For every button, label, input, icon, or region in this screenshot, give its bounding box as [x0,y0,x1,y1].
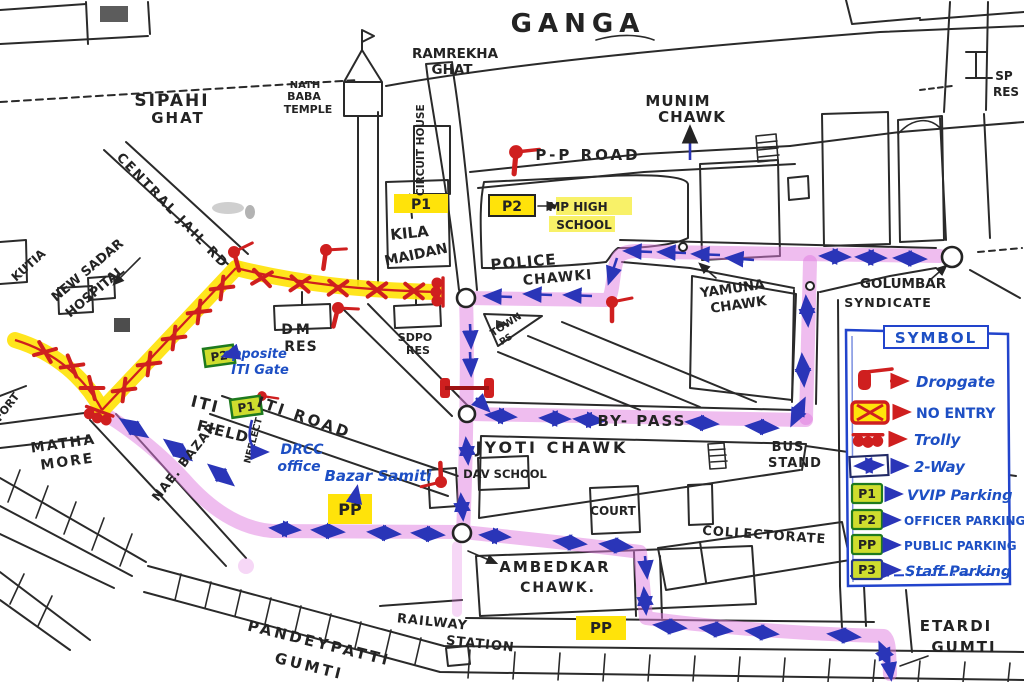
legend-label: NO ENTRY [916,406,996,422]
ambedkar-chawk-block [476,546,756,616]
parking-badge: PP [338,500,362,519]
svg-text:P2: P2 [858,512,876,527]
school-label: DAV SCHOOL [463,467,547,481]
svg-text:CHAWK: CHAWK [658,108,726,126]
svg-text:ITI Gate: ITI Gate [231,363,289,378]
river-label: GANGA [511,9,646,39]
road-label: CENTRAL JAIL RD [113,150,231,271]
kutia-label: KUTIA [9,246,49,284]
residence-label: SDPO [398,331,432,344]
trolly-icon [853,435,883,448]
legend-label: Staff Parking [905,564,1011,580]
svg-text:SCHOOL: SCHOOL [556,218,612,232]
golumbar-label: GOLUMBAR [860,276,947,292]
svg-text:BABA: BABA [287,90,321,103]
svg-text:GHAT: GHAT [432,62,474,78]
court-label: COURT [590,504,636,518]
parking-badge-icon: P1 [852,484,882,503]
school-label: MP HIGH [548,200,607,214]
road-label: BY- PASS [598,412,687,430]
stairs-crossing [708,443,727,469]
parking-badge: PP [590,619,612,637]
svg-text:office: office [277,459,320,475]
legend-label: Dropgate [916,373,995,391]
svg-text:CHAWK.: CHAWK. [520,580,596,596]
town-ps-label: TOWN PS [489,311,531,349]
legend-label: 2-Way [914,458,966,476]
svg-text:RES: RES [284,339,317,355]
map-canvas: P1 P2 P2 P1 PP PP GANGA RAMREKHA GHAT SI… [0,0,1024,682]
bus-stand-label: BUS [772,440,805,455]
chawk-label: AMBEDKAR [499,558,610,576]
chawk-label: JYOTI CHAWK [475,438,629,457]
two-way-icon [850,455,889,477]
svg-text:MAIDAN: MAIDAN [383,241,449,270]
parking-badge: P2 [502,199,522,215]
residence-label: DM [281,322,313,338]
no-entry-icon [852,402,888,423]
svg-text:TEMPLE: TEMPLE [284,103,333,116]
parking-badge-icon: P3 [852,560,882,579]
svg-text:PP: PP [858,537,876,552]
gumti-label: ETARDI [920,617,993,635]
svg-text:RES: RES [406,344,430,357]
svg-text:GHAT: GHAT [151,109,205,127]
svg-text:P3: P3 [858,562,876,577]
baba-temple-building [344,50,382,116]
circuit-house-label: CIRCUIT HOUSE [415,104,427,196]
svg-text:STAND: STAND [768,456,822,471]
legend-label: Trolly [914,431,962,449]
parking-badge: P1 [237,399,256,415]
golumbar-roundabout [942,247,962,267]
legend: SYMBOL Dropgate NO ENTRY Trolly 2-Way P1… [846,326,1024,586]
temple-flag [362,30,374,50]
hand-drawn-route-map: P1 P2 P2 P1 PP PP GANGA RAMREKHA GHAT SI… [0,0,1024,682]
dropgate-icon [317,243,346,271]
svg-text:CHAWKI: CHAWKI [522,267,593,289]
svg-text:P1: P1 [858,486,876,501]
roundabout [453,524,471,542]
svg-text:STATION: STATION [445,633,515,655]
ghat-label: SIPAHI [134,91,209,111]
legend-label: VVIP Parking [907,488,1012,504]
ghat-label: RAMREKHA [412,46,499,62]
iti-field-label: ITI [189,391,222,416]
roundabout [459,406,475,422]
dropgate-icon [606,296,632,321]
note-label: Bazar Samiti [324,467,432,485]
parking-badge-icon: P2 [852,510,882,529]
roundabout [457,289,475,307]
legend-item-no-entry: NO ENTRY [852,402,996,423]
svg-text:RES: RES [993,85,1019,99]
parking-badge-icon: PP [852,535,882,554]
legend-label: PUBLIC PARKING [904,539,1017,553]
dropgate-icon [328,301,359,332]
parking-badge: P1 [411,197,431,213]
legend-label: OFFICER PARKING [904,514,1024,528]
legend-title: SYMBOL [895,329,977,347]
svg-text:SYNDICATE: SYNDICATE [844,295,932,310]
note-label: DRCC [281,442,325,458]
maidan-label: KILA [389,222,429,244]
svg-text:GUMTI: GUMTI [931,638,996,656]
residence-label: SP [995,69,1013,83]
trolly-icon [431,278,444,307]
road-label: P-P ROAD [535,146,640,164]
